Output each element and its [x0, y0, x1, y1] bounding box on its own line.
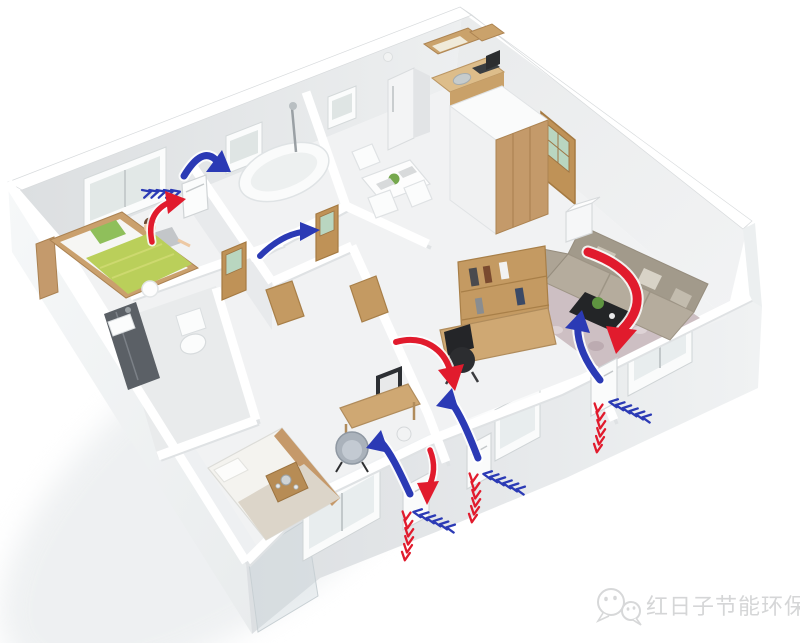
bedside-shelf — [36, 237, 58, 299]
watermark-text: 红日子节能环保 — [646, 595, 800, 620]
isometric-apartment-render: 红日子节能环保 — [0, 0, 800, 643]
door-glass-closed — [222, 242, 246, 300]
hat-box — [397, 427, 411, 441]
shower-head-icon — [289, 102, 297, 110]
ceiling-lamp-icon — [142, 281, 158, 297]
smoke-detector-icon — [384, 53, 393, 62]
door-glass-closed — [316, 205, 338, 261]
table-plant — [592, 297, 604, 309]
ventilation-floorplan-illustration: 红日子节能环保 — [0, 0, 800, 643]
